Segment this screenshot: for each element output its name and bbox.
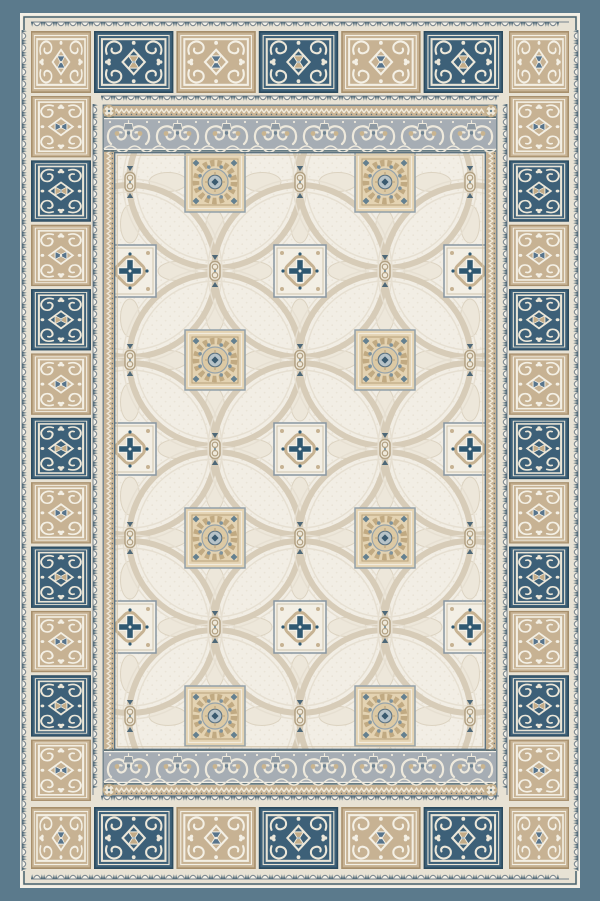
rug-photo: Top-down product photo of a rectangular … xyxy=(0,0,600,901)
rug-graphic xyxy=(0,0,600,901)
